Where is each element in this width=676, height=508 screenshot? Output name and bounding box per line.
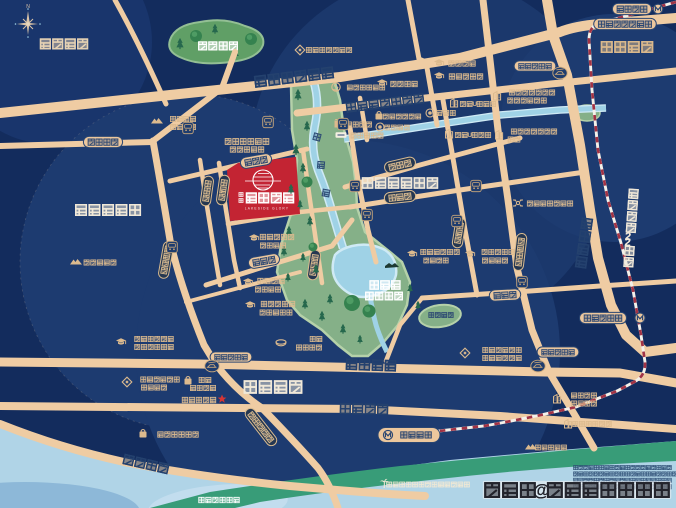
svg-text:U: U [472, 101, 477, 108]
svg-text:N: N [26, 4, 30, 10]
svg-text:LAKESIDE GLORY: LAKESIDE GLORY [245, 207, 289, 211]
svg-text:U: U [467, 132, 472, 139]
